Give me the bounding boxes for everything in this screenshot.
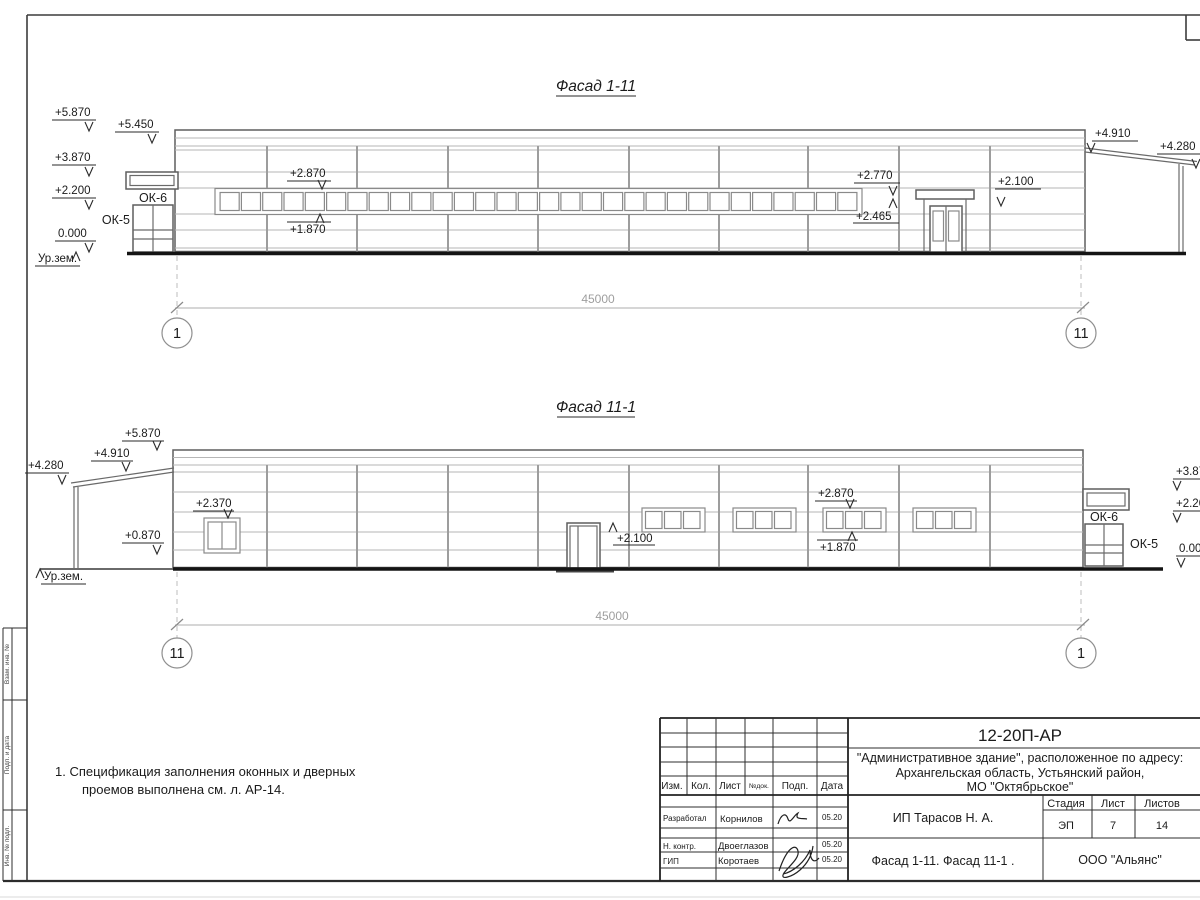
signature-developer (778, 813, 807, 824)
col-data: Дата (821, 781, 844, 792)
staff-name-1: Двоеглазов (718, 841, 769, 852)
window-pane (756, 512, 773, 529)
ribbon-window-pane (348, 193, 367, 211)
door2-top-mark: +2.770 (857, 170, 893, 182)
ribbon-window-pane (305, 193, 324, 211)
axis-1-label: 1 (1077, 646, 1085, 662)
staff-name-0: Корнилов (720, 814, 763, 825)
staff-date-0: 05.20 (822, 813, 843, 822)
col-kol: Кол. (691, 781, 711, 792)
notes: 1. Спецификация заполнения оконных и две… (55, 764, 356, 797)
dimension-value: 45000 (595, 609, 629, 623)
annex-high-mark: +4.910 (1095, 128, 1131, 140)
facade1-title: Фасад 1-11 (556, 78, 636, 95)
ribbon-bottom-mark: +1.870 (820, 542, 856, 554)
side-label-mid: Подп. и дата (4, 735, 11, 774)
ribbon-window-pane (689, 193, 708, 211)
ribbon-window-pane (369, 193, 388, 211)
window-pane (917, 512, 934, 529)
window-pane (737, 512, 754, 529)
ok5-label: ОК-5 (102, 213, 130, 227)
window-pane (684, 512, 701, 529)
ok6-label: ОК-6 (1090, 510, 1118, 524)
axis-11-label: 11 (1073, 326, 1088, 342)
note-line1: 1. Спецификация заполнения оконных и две… (55, 764, 356, 779)
ribbon-window-pane (667, 193, 686, 211)
facade2-window-left (204, 518, 240, 553)
win-left-top-mark: +2.370 (196, 498, 232, 510)
drawing-sheet: Взам. инв. № Подп. и дата Инв. № подл. Ф… (0, 0, 1200, 900)
address-line2: Архангельская область, Устьянский район, (896, 766, 1145, 780)
col-izm: Изм. (661, 781, 682, 792)
staff-name-2: Коротаев (718, 856, 759, 867)
facade2-title: Фасад 11-1 (556, 399, 636, 416)
window-pane (936, 512, 953, 529)
ground-level-label: Ур.зем. (44, 571, 83, 583)
ribbon-window-pane (391, 193, 410, 211)
door2-canopy-mark: +2.465 (856, 211, 892, 223)
staff-role-1: Н. контр. (663, 842, 696, 851)
window-pane (865, 512, 882, 529)
ribbon-top-mark: +2.870 (290, 168, 326, 180)
ribbon-bottom-mark: +1.870 (290, 224, 326, 236)
door-top-mark: +2.100 (617, 533, 653, 545)
wall-right-mark: +2.100 (998, 176, 1034, 188)
ribbon-window-pane (412, 193, 431, 211)
facade2-annex-left (71, 468, 174, 568)
facade-11-1: Фасад 11-1 (25, 399, 1200, 668)
elev-4910: +4.910 (94, 448, 130, 460)
ribbon-window-pane (838, 193, 857, 211)
ribbon-window-pane (433, 193, 452, 211)
elev-4280: +4.280 (28, 460, 64, 472)
window-pane (775, 512, 792, 529)
axis-1-label: 1 (173, 326, 181, 342)
address-line1: "Административное здание", расположенное… (857, 751, 1183, 765)
right-2200: +2.200 (1176, 498, 1200, 510)
ok5-label: ОК-5 (1130, 537, 1158, 551)
ribbon-window-pane (284, 193, 303, 211)
right-3870: +3.870 (1176, 466, 1200, 478)
sheets-total: 14 (1156, 820, 1168, 832)
window-pane (646, 512, 663, 529)
elev-2200: +2.200 (55, 185, 91, 197)
staff-role-2: ГИП (663, 857, 679, 866)
axis-11-label: 11 (169, 646, 184, 662)
side-label-top: Взам. инв. № (4, 644, 11, 684)
stage-label: Стадия (1047, 798, 1085, 810)
entrance-canopy (126, 172, 178, 189)
staff-date-1: 05.20 (822, 840, 843, 849)
ribbon-window-pane (604, 193, 623, 211)
sheet-label: Лист (1101, 798, 1125, 810)
ribbon-window-pane (582, 193, 601, 211)
elev-0000: 0.000 (58, 228, 87, 240)
ribbon-window-pane (454, 193, 473, 211)
window-pane (955, 512, 972, 529)
elev-5450: +5.450 (118, 119, 154, 131)
elev-5870: +5.870 (125, 428, 161, 440)
col-list: Лист (719, 781, 741, 792)
ribbon-window-pane (625, 193, 644, 211)
staff-role-0: Разработал (663, 814, 707, 823)
ribbon-window-pane (327, 193, 346, 211)
right-0000: 0.000 (1179, 543, 1200, 555)
elev-0870: +0.870 (125, 530, 161, 542)
facade1-entrance-left: ОК-6 ОК-5 (102, 172, 178, 252)
ribbon-top-mark: +2.870 (818, 488, 854, 500)
ribbon-window-pane (710, 193, 729, 211)
ribbon-window-pane (753, 193, 772, 211)
door-canopy (916, 190, 974, 199)
facade-1-11: Фасад 1-11 ОК-6 ОК-5 (35, 78, 1200, 348)
window-pane (827, 512, 844, 529)
col-podp: Подп. (782, 781, 809, 792)
ground-level-label: Ур.зем. (38, 253, 77, 265)
window-pane (846, 512, 863, 529)
title-block: Изм. Кол. Лист №док. Подп. Дата Разработ… (660, 718, 1200, 881)
ribbon-window-pane (795, 193, 814, 211)
facade1-dimension: 45000 1 11 (162, 256, 1096, 348)
ribbon-window-pane (540, 193, 559, 211)
signature-control (779, 846, 819, 877)
ok6-label: ОК-6 (139, 191, 167, 205)
note-line2: проемов выполнена см. л. АР-14. (82, 782, 285, 797)
sheet-number: 7 (1110, 820, 1116, 832)
ribbon-window-pane (561, 193, 580, 211)
window-pane (665, 512, 682, 529)
ribbon-window-pane (497, 193, 516, 211)
elev-5870: +5.870 (55, 107, 91, 119)
facade2-entrance-right: ОК-6 ОК-5 (1083, 489, 1158, 566)
annex-low-mark: +4.280 (1160, 141, 1196, 153)
stage-value: ЭП (1058, 820, 1074, 832)
ribbon-window-pane (646, 193, 665, 211)
facade1-annex-right (1085, 148, 1197, 252)
address-line3: МО "Октябрьское" (967, 780, 1074, 794)
ribbon-window-pane (476, 193, 495, 211)
ribbon-window-pane (241, 193, 260, 211)
elev-3870: +3.870 (55, 152, 91, 164)
sheet-title: Фасад 1-11. Фасад 11-1 . (872, 854, 1015, 868)
ribbon-window-pane (817, 193, 836, 211)
ribbon-window-pane (774, 193, 793, 211)
side-label-bottom: Инв. № подл. (4, 826, 11, 867)
entrance-canopy (1083, 489, 1129, 510)
ribbon-window-pane (731, 193, 750, 211)
doc-number: 12-20П-АР (978, 726, 1062, 745)
client: ИП Тарасов Н. А. (893, 811, 994, 825)
ribbon-window-pane (263, 193, 282, 211)
col-ndok: №док. (749, 783, 769, 790)
company: ООО "Альянс" (1078, 853, 1162, 867)
dimension-value: 45000 (581, 292, 615, 306)
ribbon-window-pane (220, 193, 239, 211)
sheets-label: Листов (1144, 798, 1180, 810)
facade2-dimension: 45000 11 1 (162, 572, 1096, 668)
staff-date-2: 05.20 (822, 855, 843, 864)
ribbon-window-pane (518, 193, 537, 211)
